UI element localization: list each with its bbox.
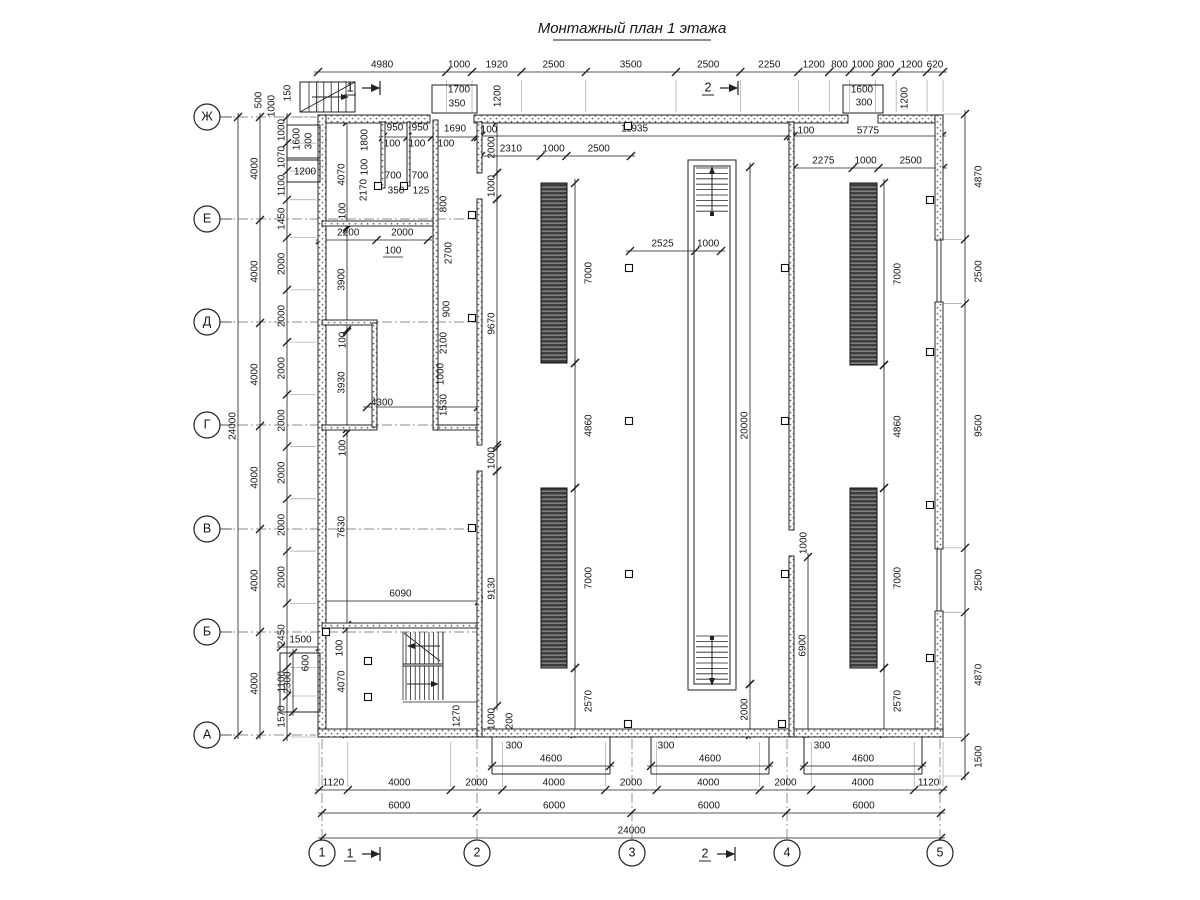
- dimension-label: 4600: [699, 754, 722, 765]
- dimension-label: 1200: [493, 84, 504, 107]
- axis-row-label: Д: [203, 315, 212, 329]
- rack: [541, 183, 567, 363]
- dimension-label: 2500: [588, 144, 611, 155]
- dimension-label: 2000: [740, 698, 751, 721]
- dimension-label: 4000: [852, 778, 875, 789]
- column-marker: [626, 418, 633, 425]
- dimension-label: 1000: [448, 60, 471, 71]
- dimension-label: 620: [927, 60, 944, 71]
- dimension-label: 2500: [543, 60, 566, 71]
- dimension-label: 2310: [500, 144, 523, 155]
- arrow-up-icon: [709, 166, 715, 174]
- dimension-label: 20000: [740, 411, 751, 439]
- dimension-label: 4980: [371, 60, 394, 71]
- wall: [322, 623, 477, 628]
- section-mark-label: 1: [347, 81, 354, 95]
- dimension-label: 3900: [337, 268, 348, 291]
- dimension-label: 4000: [543, 778, 566, 789]
- dimension-label: 2500: [974, 260, 985, 283]
- dimension-label: 7630: [337, 515, 348, 538]
- wall: [477, 199, 482, 445]
- dimension-label: 100: [335, 639, 346, 656]
- dimension-label: 7000: [584, 261, 595, 284]
- stair-cut-line: [404, 633, 440, 661]
- dimension-label: 2000: [277, 409, 288, 432]
- dimension-label: 6000: [853, 801, 876, 812]
- dimension-label: 2200: [337, 228, 360, 239]
- plan-geometry: 4980100019202500350025002250120080010008…: [194, 60, 985, 867]
- dimension-label: 9130: [487, 577, 498, 600]
- dimension-label: 1700: [448, 85, 471, 96]
- floor-plan-svg: Монтажный план 1 этажа 49801000192025003…: [0, 0, 1200, 900]
- dimension-label: 1800: [360, 128, 371, 151]
- dimension-label: 1200: [803, 60, 826, 71]
- column-marker: [365, 658, 372, 665]
- dimension-label: 6000: [388, 801, 411, 812]
- section-arrow-icon: [729, 84, 738, 92]
- column-marker: [625, 721, 632, 728]
- dimension-label: 2570: [893, 689, 904, 712]
- wall: [789, 556, 794, 737]
- dimension-label: 2525: [651, 239, 674, 250]
- dimension-label: 100: [481, 125, 498, 136]
- dimension-label: 2100: [439, 331, 450, 354]
- dimension-label: 1920: [486, 60, 509, 71]
- dimension-label: 4000: [250, 157, 261, 180]
- wall: [935, 115, 943, 240]
- dimension-label: 4300: [371, 398, 394, 409]
- dimension-label: 350: [449, 99, 466, 110]
- dimension-label: 4600: [540, 754, 563, 765]
- column-marker: [626, 571, 633, 578]
- dimension-label: 300: [304, 132, 315, 149]
- section-arrow-icon: [726, 850, 735, 858]
- wall: [322, 221, 438, 226]
- dimension-label: 300: [506, 741, 523, 752]
- dimension-label: 4000: [250, 260, 261, 283]
- column-marker: [626, 265, 633, 272]
- dimension-label: 950: [387, 123, 404, 134]
- dimension-label: 1200: [294, 167, 317, 178]
- dimension-label: 4600: [852, 754, 875, 765]
- dimension-label: 125: [413, 186, 430, 197]
- dimension-label: 2250: [758, 60, 781, 71]
- dimension-label: 1000: [697, 239, 720, 250]
- dimension-label: 4000: [250, 466, 261, 489]
- dimension-label: 2300: [283, 671, 294, 694]
- dimension-label: 2500: [974, 568, 985, 591]
- column-marker: [782, 265, 789, 272]
- dimension-label: 4000: [250, 363, 261, 386]
- dimension-label: 950: [412, 123, 429, 134]
- dimension-label: 6000: [698, 801, 721, 812]
- wall: [789, 122, 794, 530]
- dimension-label: 100: [384, 139, 401, 150]
- dimension-label: 100: [338, 202, 349, 219]
- dimension-label: 2000: [277, 304, 288, 327]
- dimension-label: 1690: [444, 124, 467, 135]
- dimension-label: 700: [412, 171, 429, 182]
- dimension-label: 7000: [893, 262, 904, 285]
- dimension-label: 9670: [487, 312, 498, 335]
- dimension-label: 3930: [337, 371, 348, 394]
- dimension-label: 100: [798, 126, 815, 137]
- axis-col-label: 3: [629, 846, 636, 860]
- dimension-label: 4870: [974, 663, 985, 686]
- wall: [407, 122, 410, 186]
- dimension-label: 200: [505, 712, 516, 729]
- dimension-label: 4000: [250, 672, 261, 695]
- ladder-end-dot: [710, 636, 714, 640]
- dimension-label: 2000: [391, 228, 414, 239]
- axis-col-label: 2: [474, 846, 481, 860]
- dimension-label: 2500: [697, 60, 720, 71]
- dimension-label: 4860: [584, 414, 595, 437]
- dimension-label: 1530: [439, 393, 450, 416]
- dimension-label: 4000: [388, 778, 411, 789]
- column-marker: [927, 349, 934, 356]
- dimension-label: 4000: [250, 569, 261, 592]
- dimension-label: 100: [338, 439, 349, 456]
- dimension-label: 600: [301, 654, 312, 671]
- section-mark-label: 1: [347, 847, 354, 861]
- wall: [372, 323, 377, 427]
- wall: [322, 425, 377, 430]
- dimension-label: 1200: [900, 60, 923, 71]
- wall: [878, 115, 943, 123]
- dimension-label: 4000: [697, 778, 720, 789]
- dimension-label: 1000: [277, 118, 288, 141]
- section-mark-label: 2: [705, 81, 712, 95]
- dimension-label: 1000: [487, 446, 498, 469]
- column-marker: [927, 655, 934, 662]
- dimension-label: 800: [831, 60, 848, 71]
- dimension-label: 4070: [337, 670, 348, 693]
- column-marker: [469, 212, 476, 219]
- column-marker: [469, 315, 476, 322]
- dimension-label: 2275: [812, 156, 835, 167]
- rack: [850, 183, 877, 365]
- section-arrow-icon: [371, 850, 380, 858]
- dimension-label: 24000: [228, 412, 239, 440]
- axis-row-label: Е: [203, 212, 211, 226]
- dimension-label: 2000: [277, 357, 288, 380]
- dimension-label: 2000: [465, 778, 488, 789]
- wall: [318, 729, 943, 737]
- dimension-label: 4870: [974, 165, 985, 188]
- dimension-label: 2500: [900, 156, 923, 167]
- rack: [541, 488, 567, 668]
- dimension-label: 100: [338, 331, 349, 348]
- dimension-label: 2000: [774, 778, 797, 789]
- dimension-label: 7000: [893, 566, 904, 589]
- dimension-label: 1600: [851, 85, 874, 96]
- dimension-label: 1000: [854, 156, 877, 167]
- column-marker: [927, 502, 934, 509]
- wall: [935, 611, 943, 737]
- dimension-label: 2000: [277, 566, 288, 589]
- column-marker: [375, 183, 382, 190]
- dimension-label: 1450: [277, 207, 288, 230]
- dimension-label: 1000: [542, 144, 565, 155]
- dimension-label: 2000: [620, 778, 643, 789]
- dimension-label: 300: [856, 98, 873, 109]
- arrow-down-icon: [709, 678, 715, 686]
- axis-col-label: 5: [937, 846, 944, 860]
- dimension-label: 7000: [584, 566, 595, 589]
- arrow-right-icon: [431, 681, 439, 687]
- column-marker: [927, 197, 934, 204]
- dimension-label: 2570: [584, 689, 595, 712]
- dimension-label: 1000: [852, 60, 875, 71]
- section-arrow-icon: [371, 84, 380, 92]
- axis-row-label: Б: [203, 625, 211, 639]
- column-marker: [323, 629, 330, 636]
- drawing-sheet: Монтажный план 1 этажа 49801000192025003…: [0, 0, 1200, 900]
- dimension-label: 4860: [893, 415, 904, 438]
- dimension-label: 100: [385, 246, 402, 257]
- dimension-label: 6000: [543, 801, 566, 812]
- axis-row-label: В: [203, 522, 211, 536]
- wall: [935, 302, 943, 549]
- axis-row-label: Ж: [201, 110, 213, 124]
- dimension-label: 1000: [799, 531, 810, 554]
- dimension-label: 2000: [277, 513, 288, 536]
- dimension-label: 150: [283, 84, 294, 101]
- dimension-label: 6090: [389, 589, 412, 600]
- column-marker: [782, 418, 789, 425]
- axis-col-label: 1: [319, 846, 326, 860]
- rack: [850, 488, 877, 668]
- dimension-label: 500: [254, 91, 265, 108]
- dimension-label: 5775: [857, 126, 880, 137]
- wall: [322, 320, 377, 325]
- dimension-label: 700: [385, 171, 402, 182]
- dimension-label: 24000: [618, 826, 646, 837]
- dimension-label: 100: [360, 158, 371, 175]
- dimension-label: 350: [388, 186, 405, 197]
- column-marker: [625, 123, 632, 130]
- dimension-label: 1270: [452, 704, 463, 727]
- dimension-label: 1500: [974, 745, 985, 768]
- dimension-label: 1500: [289, 635, 312, 646]
- dimension-label: 300: [658, 741, 675, 752]
- dimension-label: 2000: [277, 252, 288, 275]
- column-marker: [779, 721, 786, 728]
- dimension-label: 1120: [323, 778, 345, 789]
- dimension-label: 2450: [277, 624, 288, 647]
- column-marker: [365, 694, 372, 701]
- axis-row-label: А: [203, 728, 212, 742]
- dimension-label: 1200: [900, 86, 911, 109]
- column-marker: [469, 525, 476, 532]
- dimension-label: 1570: [277, 705, 288, 728]
- dimension-label: 800: [877, 60, 894, 71]
- dimension-label: 100: [409, 139, 426, 150]
- dimension-label: 1600: [292, 127, 303, 150]
- dimension-label: 1000: [487, 707, 498, 730]
- dimension-label: 9500: [974, 414, 985, 437]
- dimension-label: 800: [439, 195, 450, 212]
- wall: [477, 471, 482, 737]
- column-marker: [782, 571, 789, 578]
- axis-col-label: 4: [784, 846, 791, 860]
- dimension-label: 2170: [359, 178, 370, 201]
- dimension-label: 1100: [277, 174, 288, 196]
- dimension-label: 100: [438, 139, 455, 150]
- section-mark-label: 2: [702, 847, 709, 861]
- dimension-label: 6900: [798, 634, 809, 657]
- axis-row-label: Г: [204, 418, 211, 432]
- page-title: Монтажный план 1 этажа: [538, 20, 727, 37]
- dimension-label: 3500: [620, 60, 643, 71]
- dimension-label: 1120: [918, 778, 940, 789]
- dimension-label: 300: [814, 741, 831, 752]
- dimension-label: 1070: [277, 146, 288, 169]
- dimension-label: 4070: [337, 163, 348, 186]
- ladder-end-dot: [710, 212, 714, 216]
- dimension-label: 2000: [487, 136, 498, 159]
- dimension-label: 900: [442, 300, 453, 317]
- dimension-label: 2000: [277, 461, 288, 484]
- wall: [437, 425, 477, 430]
- dimension-label: 1000: [267, 94, 278, 117]
- dimension-label: 1000: [487, 174, 498, 197]
- dimension-label: 1000: [436, 362, 447, 385]
- dimension-label: 2700: [444, 241, 455, 264]
